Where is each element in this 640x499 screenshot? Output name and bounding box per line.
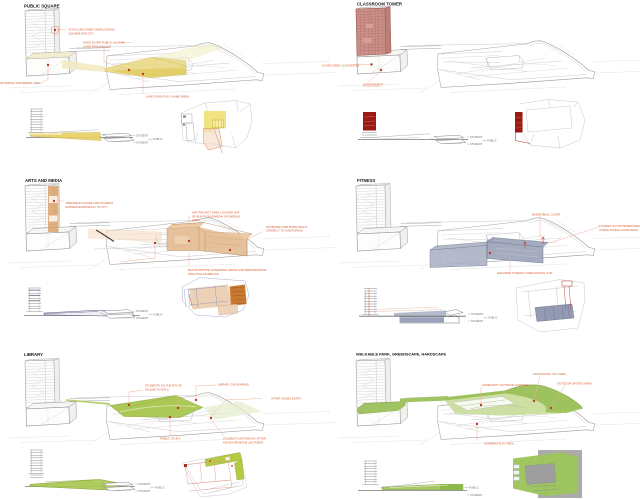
svg-text:SQUARE AND CITY: SQUARE AND CITY bbox=[69, 31, 95, 35]
svg-text:INCLINE IN GIRLS: INCLINE IN GIRLS bbox=[145, 387, 169, 391]
svg-text:STUDENTS ON THE ROUTE: STUDENTS ON THE ROUTE bbox=[145, 384, 182, 388]
svg-text:BASKETBALL COURT: BASKETBALL COURT bbox=[532, 213, 561, 217]
svg-text:EXTERNAL GATHERING AREA: EXTERNAL GATHERING AREA bbox=[1, 81, 41, 85]
svg-text:MANAGEMENT: MANAGEMENT bbox=[363, 83, 383, 87]
svg-text:HARD SLOPE PUBLIC SQUARE: HARD SLOPE PUBLIC SQUARE bbox=[83, 41, 125, 45]
svg-text:WALKABLE PARK, GREENSCAPE, H: WALKABLE PARK, GREENSCAPE, HARDSCAPE bbox=[356, 352, 446, 357]
svg-text:CLASSROOM TOWER: CLASSROOM TOWER bbox=[357, 2, 403, 7]
svg-text:PRACTICE EXHIBITION: PRACTICE EXHIBITION bbox=[188, 272, 219, 276]
svg-text:EXPRESSION/DISPLAY TO CITY: EXPRESSION/DISPLAY TO CITY bbox=[66, 205, 108, 209]
svg-text:COMMUNITY OUTDOOR GARDENS: COMMUNITY OUTDOOR GARDENS bbox=[482, 383, 529, 387]
svg-text:STUDENT AUDITORIUM / AFTER: STUDENT AUDITORIUM / AFTER bbox=[223, 437, 266, 441]
svg-text:SOCIAL BECOMES OVERLOOKING: SOCIAL BECOMES OVERLOOKING bbox=[69, 28, 115, 32]
svg-text:PUBLIC STUDY: PUBLIC STUDY bbox=[160, 437, 180, 441]
svg-text:LAND FORM PLAY (GAME AREA): LAND FORM PLAY (GAME AREA) bbox=[146, 95, 189, 99]
svg-text:ELEVATED FITNESS OVERLOOKING G: ELEVATED FITNESS OVERLOOKING GYM bbox=[497, 271, 553, 275]
svg-text:OVERLOOKING GYMNASIUM: OVERLOOKING GYMNASIUM bbox=[599, 228, 638, 232]
svg-text:OUTDOOR SPORTS AREA: OUTDOOR SPORTS AREA bbox=[557, 382, 592, 386]
svg-text:LIBRARY CAN EXPAND: LIBRARY CAN EXPAND bbox=[218, 383, 249, 387]
svg-text:AREA: AREA bbox=[192, 218, 200, 222]
svg-text:OPENABLE FACADE FOR STUDENT: OPENABLE FACADE FOR STUDENT bbox=[66, 201, 114, 205]
svg-text:LIBRARY: LIBRARY bbox=[24, 352, 43, 357]
svg-text:AFTER HOURS ENTRY: AFTER HOURS ENTRY bbox=[271, 397, 301, 401]
svg-text:MULTIPURPOSE GATHERING SPACE F: MULTIPURPOSE GATHERING SPACE FOR PERFORM… bbox=[188, 268, 266, 272]
svg-text:PICNIC/HANG OUT AREA: PICNIC/HANG OUT AREA bbox=[533, 372, 566, 376]
svg-text:PUBLIC SQUARE: PUBLIC SQUARE bbox=[24, 3, 60, 8]
svg-text:ART PROJECT AREA LOCATED OFF: ART PROJECT AREA LOCATED OFF bbox=[192, 211, 240, 215]
svg-text:STUDENT ACTIVITIES/RECREATION: STUDENT ACTIVITIES/RECREATION bbox=[599, 224, 640, 228]
svg-text:CLASS SIZED CLASSROOM: CLASS SIZED CLASSROOM bbox=[322, 64, 360, 68]
svg-text:CONNECT TO AUDITORIUM: CONNECT TO AUDITORIUM bbox=[266, 229, 303, 233]
svg-text:ARTS AND MEDIA: ARTS AND MEDIA bbox=[25, 178, 62, 183]
svg-text:GAME PAVILION OUT: GAME PAVILION OUT bbox=[83, 44, 111, 48]
svg-text:(GARDEN) PLAY AREA: (GARDEN) PLAY AREA bbox=[484, 442, 514, 446]
svg-text:OF BUS PICKUP/MEDIA GATHERING: OF BUS PICKUP/MEDIA GATHERING bbox=[192, 214, 240, 218]
svg-text:SKYBOARD AND BURN FRONT: SKYBOARD AND BURN FRONT bbox=[266, 225, 307, 229]
svg-text:FITNESS: FITNESS bbox=[357, 178, 375, 183]
svg-text:HOURS REVENUE LECTURES: HOURS REVENUE LECTURES bbox=[223, 440, 263, 444]
